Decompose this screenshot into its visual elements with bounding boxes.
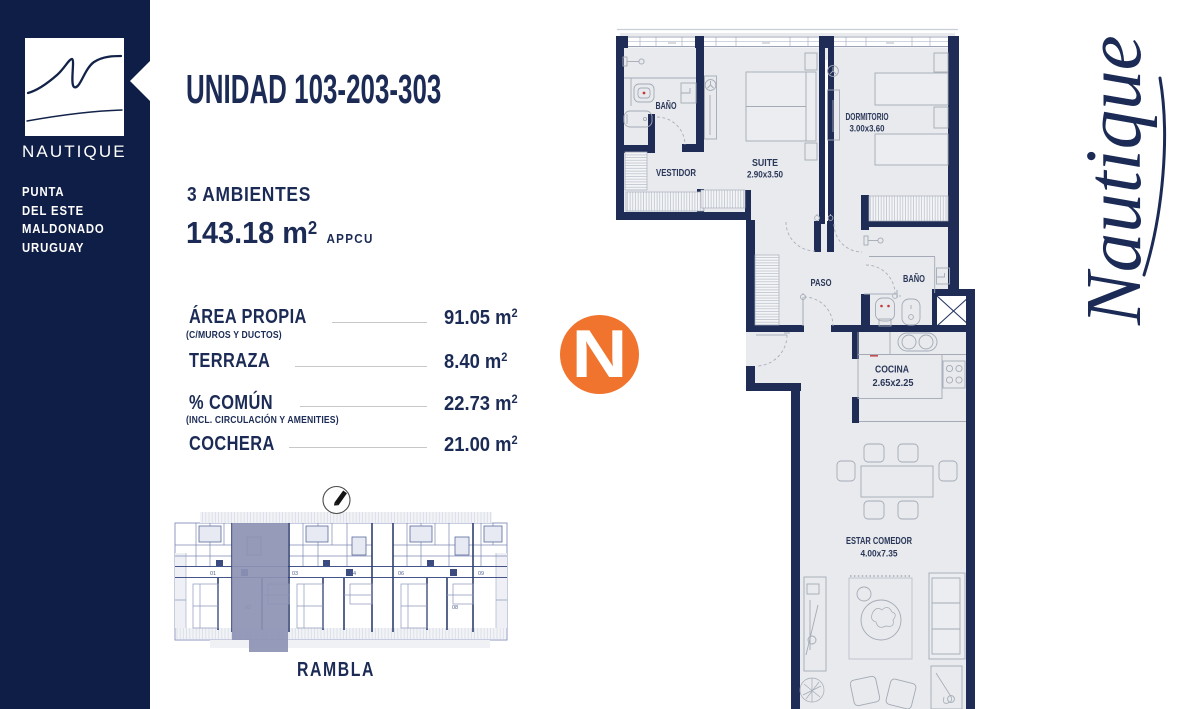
svg-text:PASO: PASO (811, 278, 832, 289)
svg-text:ESTAR COMEDOR: ESTAR COMEDOR (846, 535, 912, 547)
svg-text:VESTIDOR: VESTIDOR (656, 167, 696, 179)
svg-text:08: 08 (452, 605, 458, 611)
svg-text:2.90x3.50: 2.90x3.50 (747, 170, 783, 181)
svg-text:Nautique: Nautique (1071, 35, 1158, 326)
svg-text:DORMITORIO: DORMITORIO (846, 112, 889, 123)
svg-text:2.65x2.25: 2.65x2.25 (873, 378, 914, 389)
svg-text:4.00x7.35: 4.00x7.35 (861, 549, 899, 560)
svg-text:BAÑO: BAÑO (656, 99, 677, 112)
svg-text:06: 06 (398, 571, 404, 577)
svg-text:3.00x3.60: 3.00x3.60 (850, 124, 885, 135)
svg-text:COCINA: COCINA (875, 364, 909, 376)
svg-text:01: 01 (210, 571, 216, 577)
svg-text:03: 03 (292, 571, 298, 577)
svg-text:09: 09 (478, 571, 484, 577)
svg-text:SUITE: SUITE (752, 157, 778, 169)
svg-text:04: 04 (350, 571, 356, 577)
svg-text:BAÑO: BAÑO (903, 272, 925, 285)
